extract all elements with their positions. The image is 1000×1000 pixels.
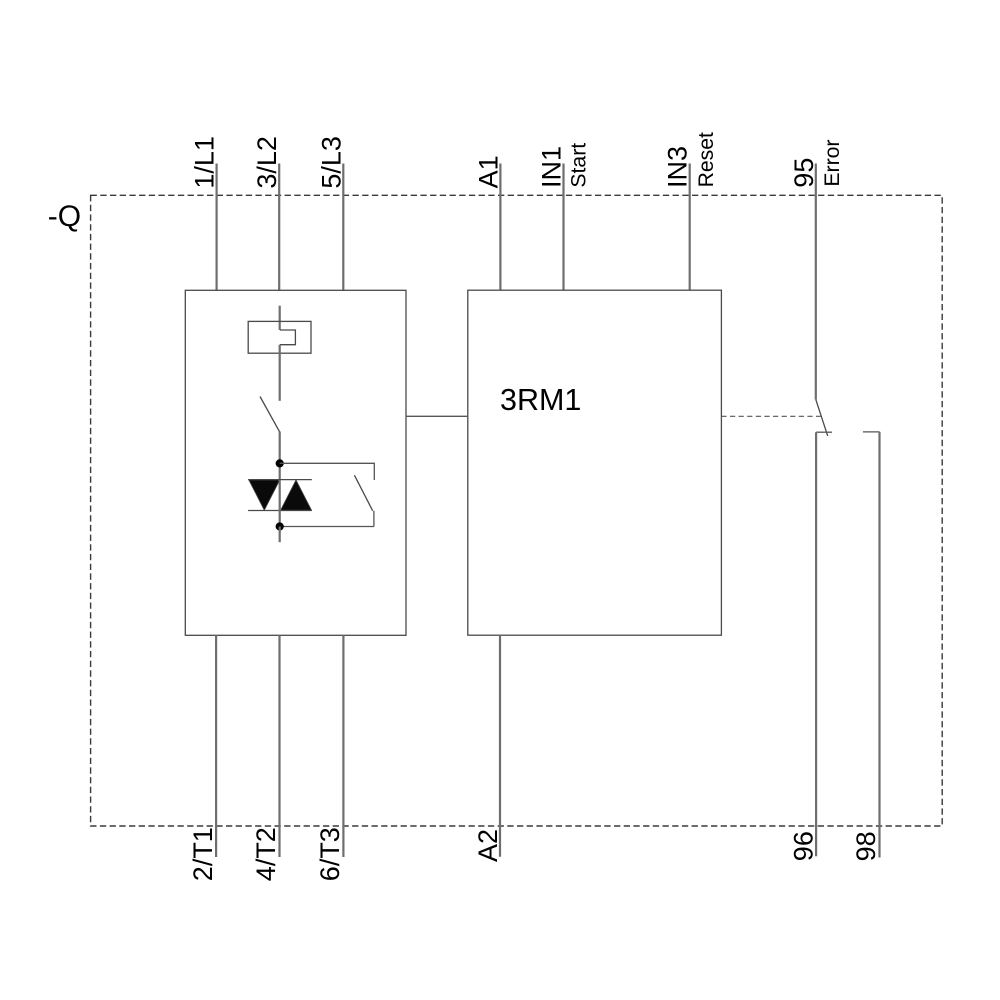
svg-text:A2: A2: [473, 829, 503, 862]
svg-text:3RM1: 3RM1: [500, 383, 581, 417]
svg-text:2/T1: 2/T1: [188, 827, 218, 881]
svg-text:3/L2: 3/L2: [252, 136, 282, 189]
svg-text:1/L1: 1/L1: [190, 136, 220, 189]
svg-text:4/T2: 4/T2: [251, 827, 281, 881]
svg-text:A1: A1: [473, 155, 503, 188]
svg-text:IN1: IN1: [537, 146, 567, 188]
svg-text:IN3: IN3: [663, 146, 693, 188]
svg-text:98: 98: [851, 831, 881, 861]
svg-text:96: 96: [789, 831, 819, 861]
svg-text:Reset: Reset: [695, 132, 718, 187]
svg-text:Error: Error: [821, 140, 844, 187]
svg-text:95: 95: [789, 158, 819, 188]
svg-text:Start: Start: [568, 143, 591, 188]
svg-text:-Q: -Q: [48, 200, 81, 233]
svg-text:5/L3: 5/L3: [316, 136, 346, 189]
svg-text:6/T3: 6/T3: [315, 827, 345, 881]
